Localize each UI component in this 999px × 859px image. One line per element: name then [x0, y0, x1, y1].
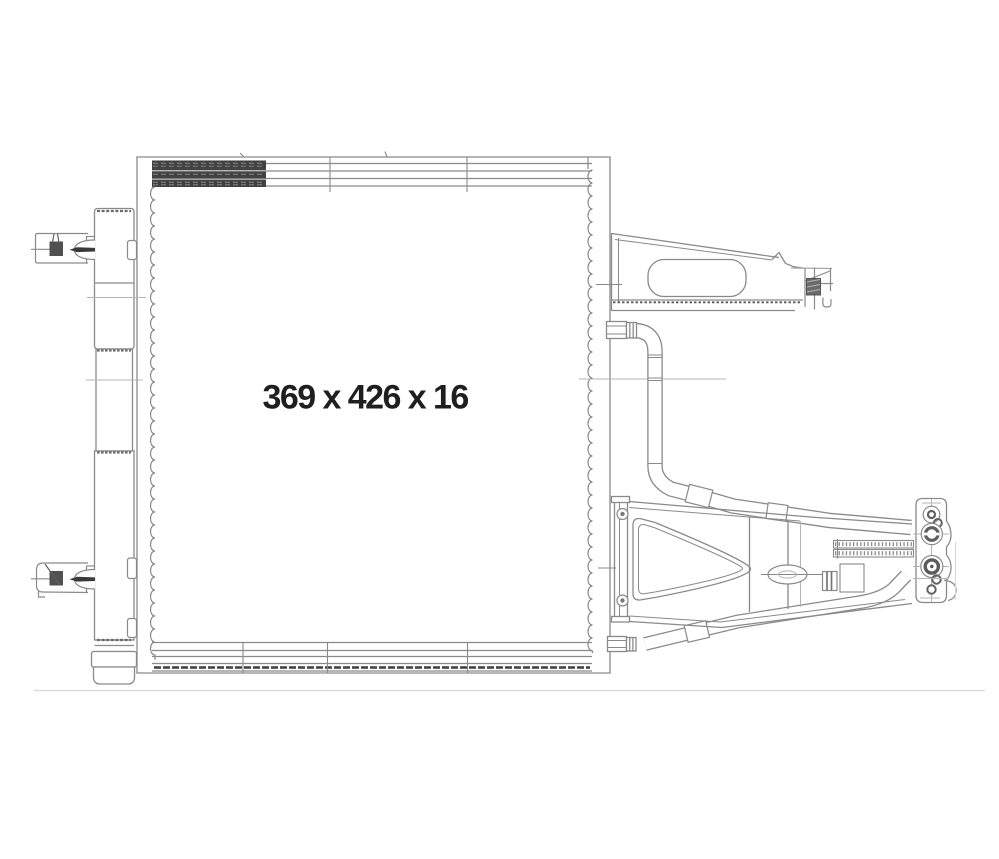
- svg-text:369 x 426 x 16: 369 x 426 x 16: [263, 379, 469, 417]
